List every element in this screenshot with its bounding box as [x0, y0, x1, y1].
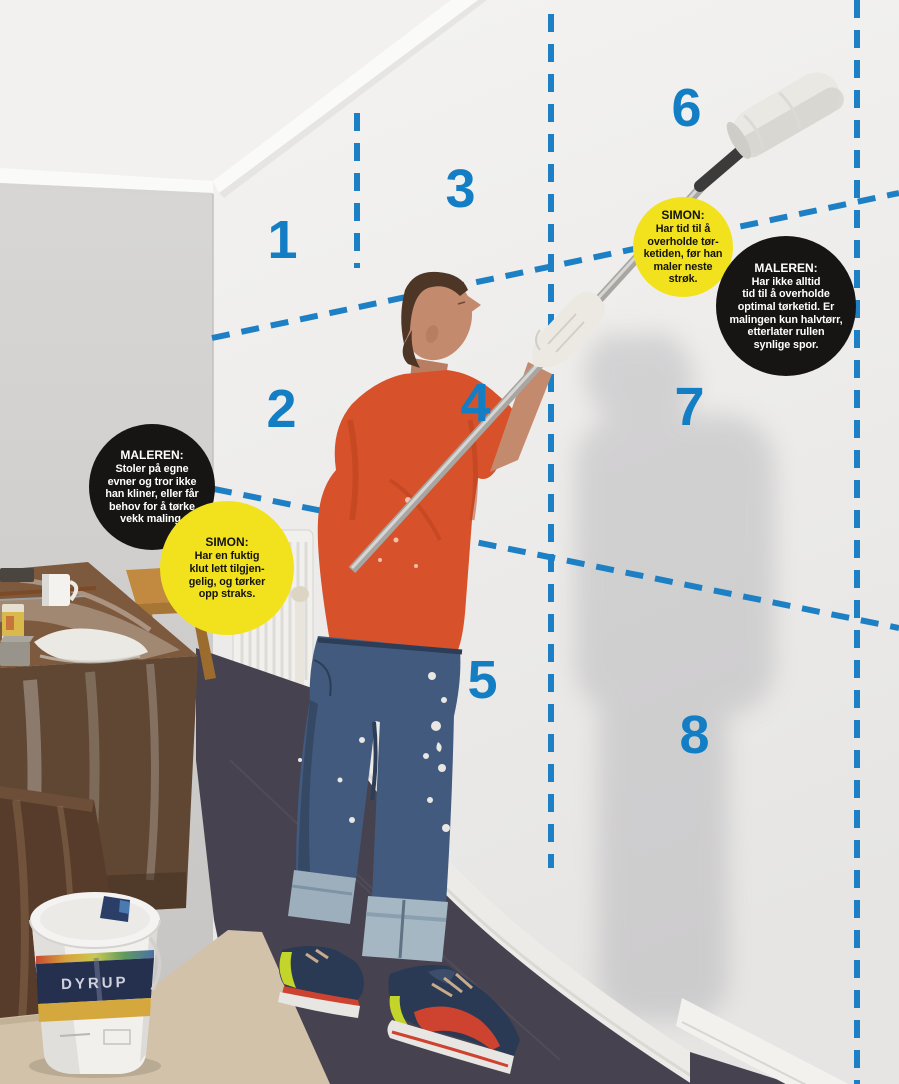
- zone-number-5: 5: [467, 653, 496, 707]
- callout-simon-spill: SIMON: Har en fuktigklut lett tilgjen-ge…: [160, 501, 294, 635]
- radiator-pipe: [295, 598, 304, 690]
- callout-text: Har en fuktigklut lett tilgjen-gelig, og…: [189, 550, 265, 601]
- painter-jeans: [296, 636, 462, 904]
- zone-number-6: 6: [671, 81, 700, 135]
- zone-number-3: 3: [445, 162, 474, 216]
- zone-number-2: 2: [266, 382, 295, 436]
- paint-bucket-brand: DYRUP: [61, 974, 129, 993]
- paint-bucket: DYRUP: [29, 892, 161, 1078]
- magazine-photo-page: DYRUP: [0, 0, 899, 1084]
- paint-tray: [0, 568, 34, 582]
- callout-maleren-drying: MALEREN: Har ikke alltidtid til å overho…: [716, 236, 856, 376]
- callout-speaker: MALEREN:: [754, 261, 817, 276]
- zone-number-8: 8: [679, 708, 708, 762]
- radiator-valve: [291, 586, 309, 602]
- callout-text: Har tid til åoverholde tør-ketiden, før …: [644, 223, 723, 286]
- zone-number-4: 4: [460, 376, 489, 430]
- callout-speaker: MALEREN:: [120, 448, 183, 463]
- zone-number-1: 1: [267, 213, 296, 267]
- zone-number-7: 7: [674, 380, 703, 434]
- callout-speaker: SIMON:: [661, 208, 704, 223]
- callout-speaker: SIMON:: [205, 535, 248, 550]
- sponge-block: [0, 636, 34, 666]
- callout-text: Har ikke alltidtid til å overholdeoptima…: [730, 276, 843, 352]
- callout-simon-drying: SIMON: Har tid til åoverholde tør-ketide…: [633, 197, 733, 297]
